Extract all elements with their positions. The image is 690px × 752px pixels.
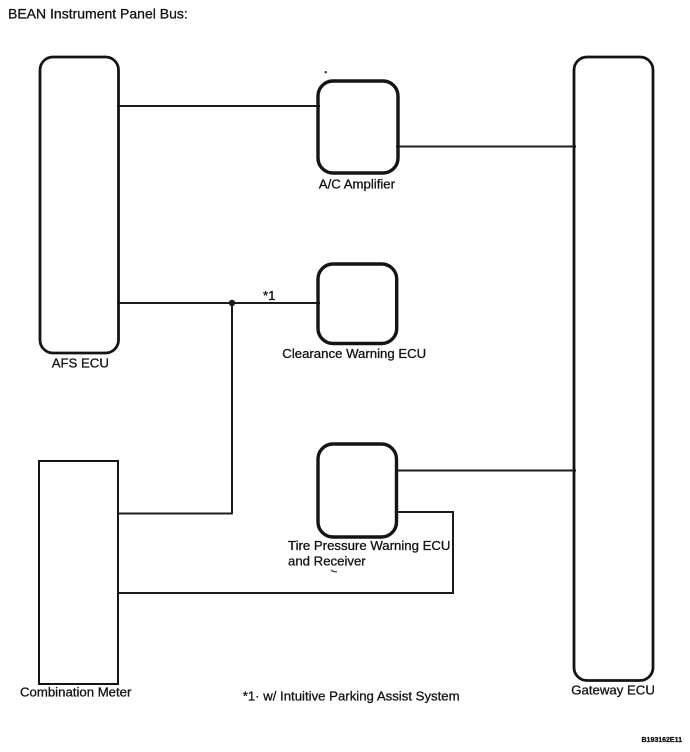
svg-text:*1· w/ Intuitive Parking Assis: *1· w/ Intuitive Parking Assist System — [243, 689, 460, 704]
svg-text:Tire Pressure Warning ECU: Tire Pressure Warning ECU — [288, 538, 450, 553]
svg-text:AFS ECU: AFS ECU — [52, 356, 109, 371]
svg-text:and Receiver: and Receiver — [288, 553, 366, 568]
svg-text:A/C Amplifier: A/C Amplifier — [319, 177, 396, 192]
svg-text:*1: *1 — [263, 288, 275, 303]
svg-text:Clearance Warning ECU: Clearance Warning ECU — [282, 346, 426, 361]
svg-text:B193162E11: B193162E11 — [642, 737, 683, 744]
svg-text:Gateway ECU: Gateway ECU — [571, 683, 655, 698]
svg-text:Combination Meter: Combination Meter — [20, 684, 132, 699]
svg-text:BEAN Instrument Panel Bus:: BEAN Instrument Panel Bus: — [8, 6, 188, 22]
